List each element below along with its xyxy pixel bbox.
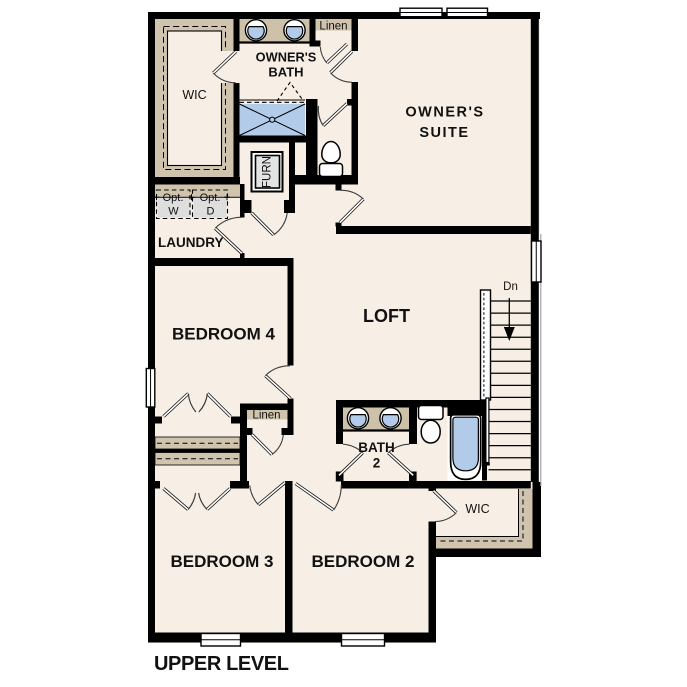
svg-text:WIC: WIC [465,502,489,516]
svg-text:UPPER LEVEL: UPPER LEVEL [154,653,289,675]
svg-text:2: 2 [373,456,381,471]
svg-text:BATH: BATH [268,65,303,80]
svg-text:LAUNDRY: LAUNDRY [158,235,224,250]
svg-text:OWNER'S: OWNER'S [405,105,484,121]
svg-text:D: D [207,206,215,218]
svg-text:Opt.: Opt. [200,192,221,204]
svg-text:BEDROOM 3: BEDROOM 3 [171,552,274,571]
svg-text:WIC: WIC [182,88,206,102]
svg-text:SUITE: SUITE [419,125,469,141]
svg-text:BEDROOM 2: BEDROOM 2 [312,552,415,571]
svg-text:Dn: Dn [503,281,518,293]
svg-text:BEDROOM 4: BEDROOM 4 [172,325,276,344]
svg-text:Opt.: Opt. [163,192,184,204]
svg-text:FURN: FURN [262,156,274,188]
svg-text:Linen: Linen [252,410,280,422]
svg-text:BATH: BATH [358,440,395,455]
svg-text:OWNER'S: OWNER'S [256,50,317,65]
svg-text:LOFT: LOFT [363,306,410,326]
svg-text:W: W [168,206,179,218]
svg-text:Linen: Linen [319,21,347,33]
